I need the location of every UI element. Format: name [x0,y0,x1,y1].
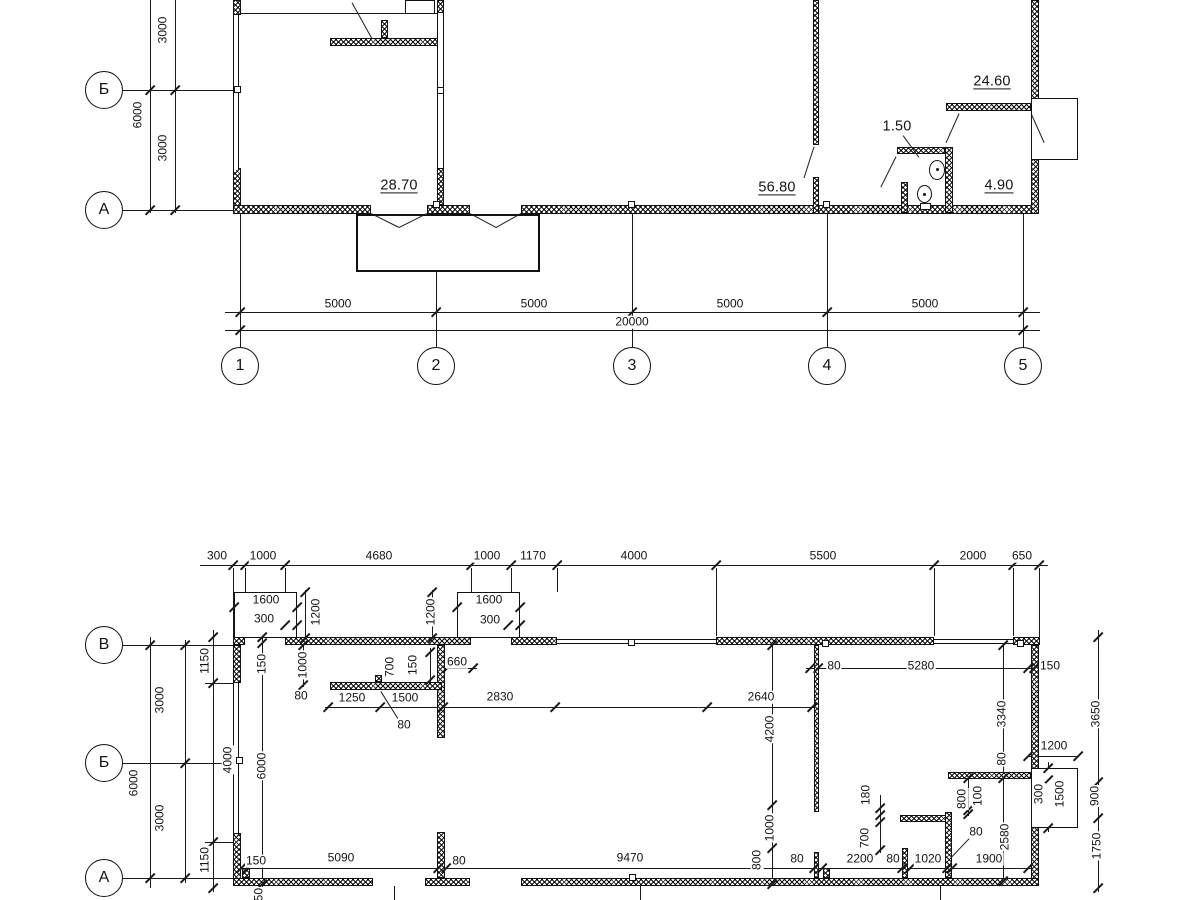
dimension-line [150,0,151,213]
dimension-label: 300 [1033,783,1046,805]
wall-segment [948,772,1031,779]
dimension-label: 4000 [222,746,235,775]
dimension-label: 5500 [809,550,838,563]
axis-marker [236,757,243,764]
dimension-label: 3000 [154,686,167,715]
axis-bubble: 4 [808,347,846,385]
wall-segment [521,878,1039,886]
dimension-label: 5280 [907,660,936,673]
sanitary-fixture-icon [405,0,435,14]
dimension-label: 3000 [157,134,170,163]
window-line [934,639,1013,644]
wall-segment [901,182,908,213]
dimension-label: 1500 [391,692,420,705]
window-line [557,639,716,644]
dimension-label: 4000 [620,550,649,563]
dimension-label: 2830 [486,691,515,704]
room-area-label: 28.70 [379,178,418,193]
wall-segment [233,645,241,683]
dimension-label: 1250 [338,692,367,705]
dimension-line [122,90,233,91]
dimension-label: 2640 [747,691,776,704]
dimension-label: 650 [1011,550,1033,563]
dimension-label: 100 [972,785,985,807]
axis-bubble: Б [85,71,123,109]
wall-segment [897,147,945,154]
dimension-label: 80 [789,853,804,866]
dimension-label: 20000 [614,316,649,329]
dimension-label: 1000 [764,814,777,843]
door-swing-line [351,2,372,39]
dimension-line [241,868,1031,869]
wall-segment [900,815,948,822]
dimension-label: 80 [826,660,841,673]
wall-segment [521,205,1039,214]
wall-segment [330,38,443,46]
dimension-label: 1020 [914,853,943,866]
wall-segment [813,177,819,214]
axis-bubble: Б [85,744,123,782]
dimension-line [245,568,246,592]
wall-segment [437,168,444,205]
dimension-label: 6000 [256,752,269,781]
dimension-label: 1000 [249,550,278,563]
room-area-label: 4.90 [983,178,1014,193]
dimension-label: 4680 [365,550,394,563]
dimension-label: 1000 [297,651,310,680]
dimension-line [122,645,233,646]
axis-marker [823,201,830,208]
dimension-label: 1200 [1040,740,1069,753]
door-swing-line [951,837,971,858]
wall-segment [381,20,388,38]
dimension-line [305,590,306,638]
dimension-line [716,568,717,636]
dimension-line [640,886,641,900]
dimension-label: 700 [859,827,872,849]
dimension-label: 80 [996,751,1009,766]
dimension-label: 5000 [520,298,549,311]
dimension-line [934,568,935,636]
wall-segment [233,637,245,645]
dimension-line [827,214,828,349]
dimension-label: 180 [860,784,873,806]
dimension-label: 5000 [716,298,745,311]
axis-bubble: 3 [613,347,651,385]
dimension-line [880,795,881,853]
dimension-line [557,568,558,592]
dimension-label: 80 [293,690,308,703]
dimension-label: 1600 [475,594,504,607]
wall-segment [233,205,371,214]
dimension-label: 2200 [846,853,875,866]
dimension-label: 9470 [616,852,645,865]
room-area-label: 56.80 [757,180,796,195]
dimension-label: 1170 [519,550,547,563]
fixture-dot [936,168,939,171]
dimension-label: 3000 [154,804,167,833]
axis-marker [437,87,444,94]
architectural-floor-plan-drawing: 30006000300050005000500050002000028.7056… [0,0,1200,900]
porch-outline [356,214,540,272]
dimension-label: 6000 [132,101,145,130]
axis-bubble: 5 [1004,347,1042,385]
dimension-line [200,565,1048,566]
dimension-label: 150 [407,654,420,676]
axis-bubble: 2 [417,347,455,385]
axis-marker [628,201,635,208]
dimension-label: 150 [253,887,266,900]
dimension-line [175,0,176,213]
dimension-label: 1600 [252,594,281,607]
dimension-label: 300 [479,614,501,627]
dimension-label: 1000 [473,550,502,563]
dimension-label: 800 [751,849,764,871]
axis-marker [822,640,829,647]
dimension-label: 2580 [999,823,1012,852]
dimension-label: 3000 [157,16,170,45]
dimension-line [471,568,472,592]
wall-segment [945,147,953,213]
dimension-line [213,630,214,892]
axis-marker [234,86,241,93]
wall-segment [233,878,373,886]
axis-bubble: В [85,626,123,664]
dimension-line [122,763,233,764]
wall-segment [946,103,1031,111]
dimension-line [1039,568,1040,638]
dimension-line [225,330,1040,331]
dimension-label: 660 [446,656,468,669]
dimension-label: 5000 [324,298,353,311]
dimension-line [1013,568,1014,636]
dimension-label: 1150 [199,647,212,675]
dimension-label: 80 [396,719,411,732]
dimension-label: 300 [253,613,275,626]
wall-segment [823,868,830,878]
dimension-line [632,214,633,349]
door-swing-line [945,113,959,142]
dimension-line [325,707,815,708]
door-swing-line [803,146,814,177]
axis-marker [629,874,636,881]
dimension-line [150,637,151,888]
dimension-label: 150 [245,855,267,868]
dimension-label: 5000 [911,298,940,311]
dimension-label: 1200 [425,598,438,627]
dimension-label: 800 [956,788,969,810]
dimension-label: 80 [451,855,466,868]
dimension-line [285,568,286,592]
dimension-label: 700 [384,656,397,678]
door-swing-line [880,156,896,187]
axis-bubble: А [85,191,123,229]
dimension-label: 150 [1039,660,1061,673]
dimension-line [940,886,941,900]
dimension-line [122,210,233,211]
wall-segment [425,878,470,886]
dimension-label: 6000 [128,769,141,798]
wall-segment [233,0,241,15]
room-area-label: 1.50 [881,119,912,134]
wall-segment [511,637,557,645]
dimension-line [772,645,773,885]
dimension-label: 1500 [1054,780,1067,809]
dimension-label: 300 [206,550,228,563]
sanitary-fixture-icon [920,203,931,210]
dimension-line [394,886,395,900]
dimension-label: 5090 [327,852,356,865]
dimension-label: 80 [885,853,900,866]
axis-bubble: 1 [221,347,259,385]
dimension-label: 900 [1089,785,1102,807]
dimension-label: 1150 [199,846,212,874]
wall-segment [1031,0,1039,112]
axis-marker [628,639,635,646]
dimension-label: 3340 [996,700,1009,729]
wall-segment [375,675,382,682]
fixture-dot [923,193,926,196]
axis-marker [433,201,440,208]
wall-segment [285,637,471,645]
dimension-label: 80 [968,826,983,839]
dimension-label: 1750 [1091,832,1104,861]
dimension-label: 2000 [959,550,988,563]
dimension-label: 1900 [975,853,1004,866]
dimension-label: 150 [256,653,269,675]
dimension-line [511,568,512,592]
wall-segment [813,0,819,145]
dimension-line [122,878,233,879]
dimension-label: 1200 [310,598,323,627]
room-area-label: 24.60 [972,74,1011,89]
axis-bubble: А [85,859,123,897]
axis-marker [1017,640,1024,647]
wall-segment [437,0,444,13]
dimension-label: 3650 [1090,700,1103,729]
wall-segment [437,645,445,738]
dimension-label: 4200 [764,715,777,744]
